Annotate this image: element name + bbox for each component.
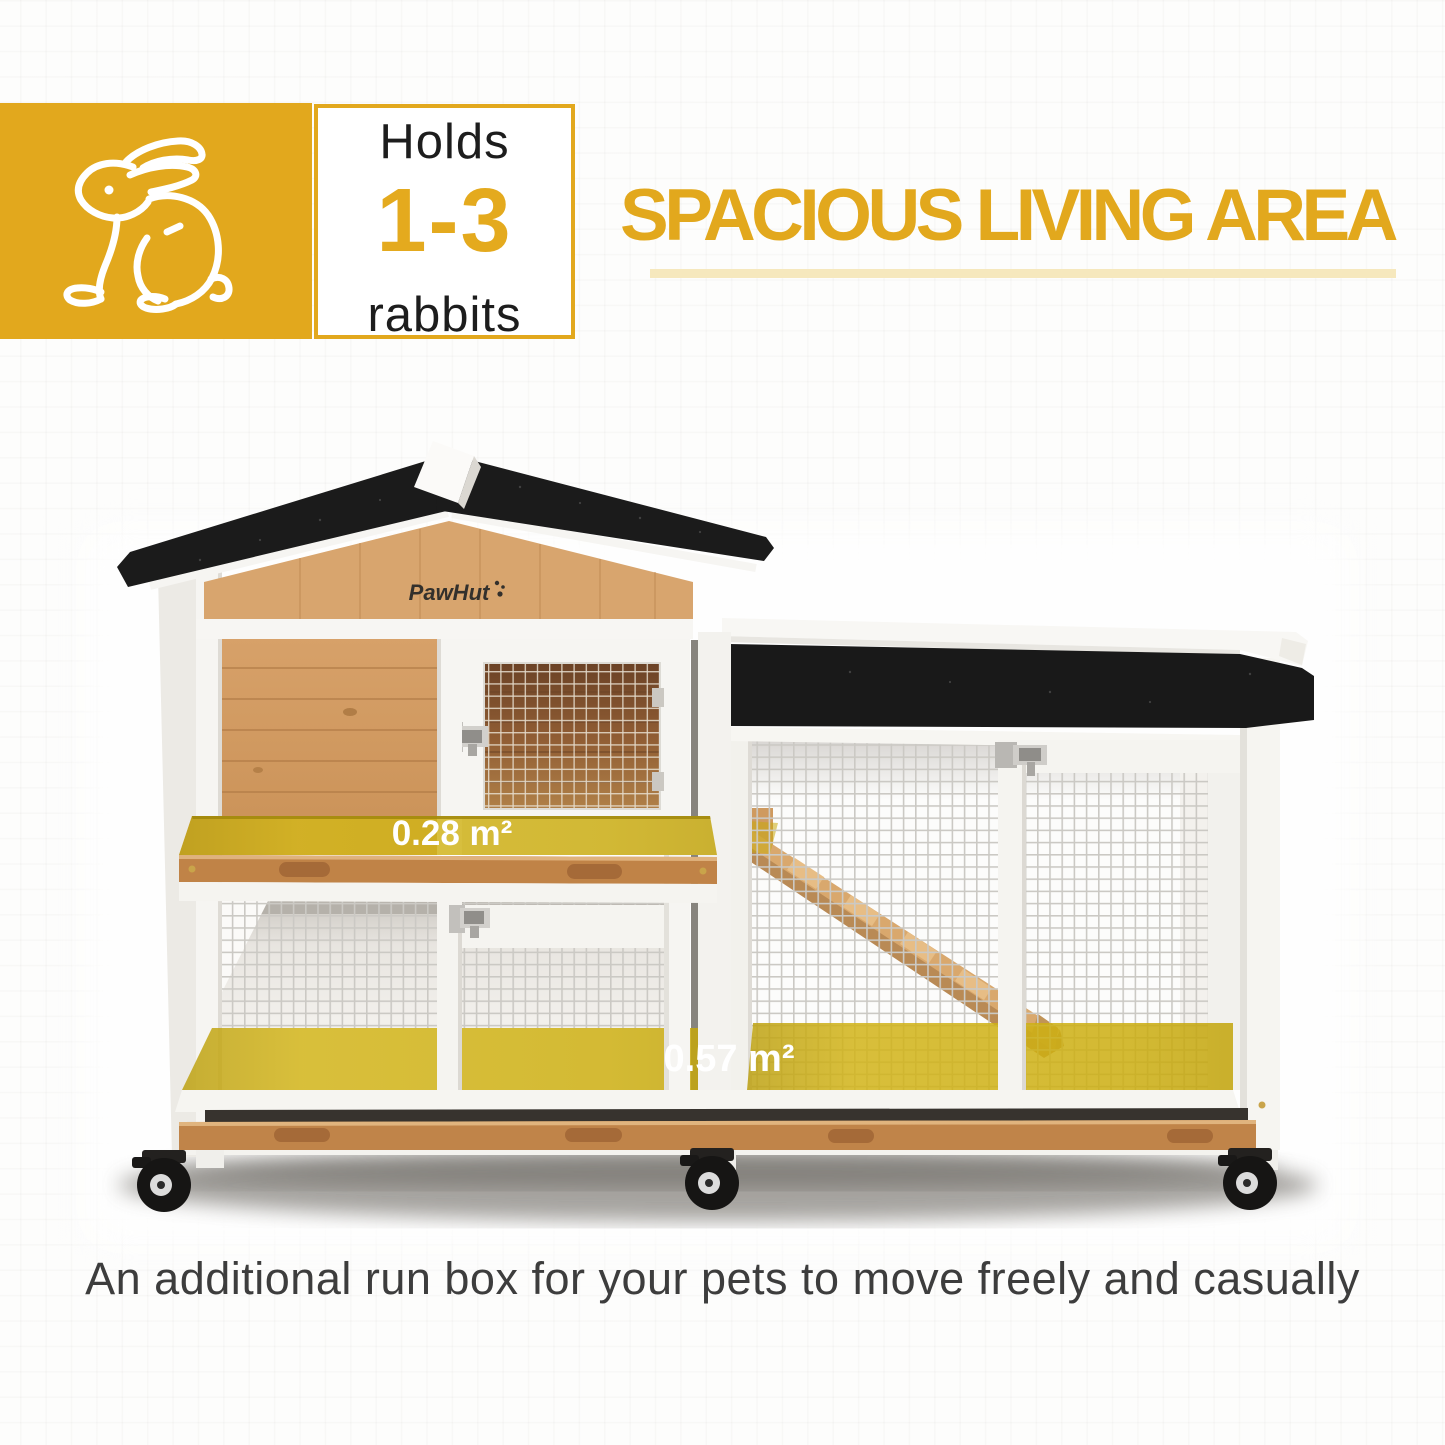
svg-text:0.57 m²: 0.57 m² [664, 1038, 795, 1080]
svg-text:0.28 m²: 0.28 m² [392, 814, 513, 853]
svg-text:PawHut: PawHut [409, 580, 491, 605]
